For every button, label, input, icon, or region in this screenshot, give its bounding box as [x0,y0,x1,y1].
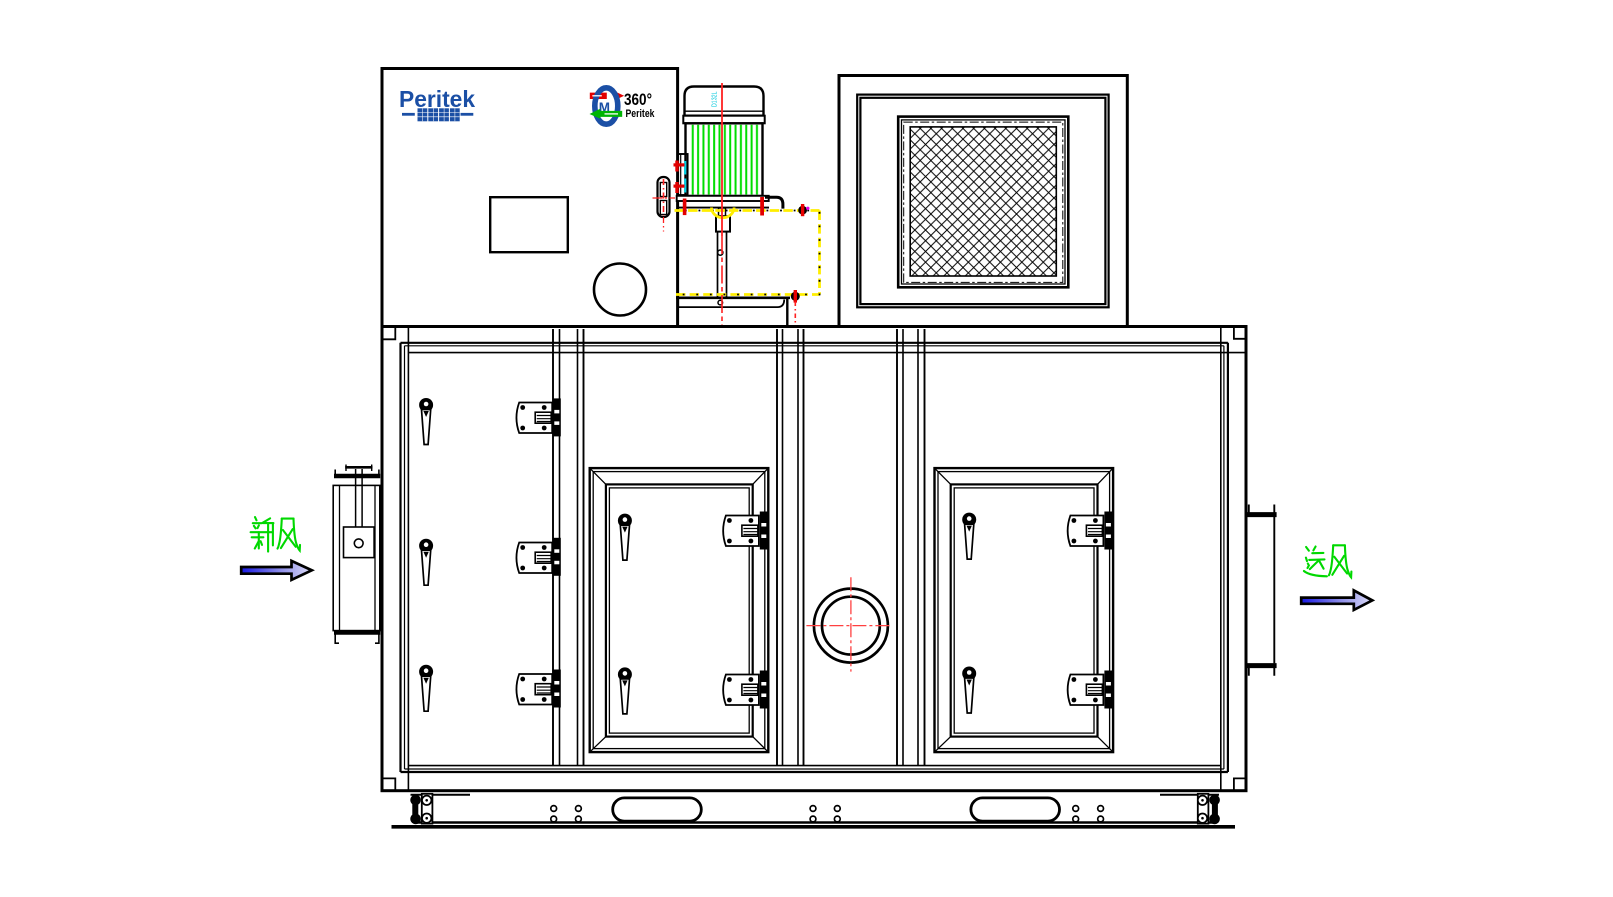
svg-text:Peritek: Peritek [399,86,476,112]
svg-text:D132L: D132L [712,91,719,107]
svg-text:360°: 360° [624,91,652,109]
svg-text:Peritek: Peritek [626,108,656,120]
